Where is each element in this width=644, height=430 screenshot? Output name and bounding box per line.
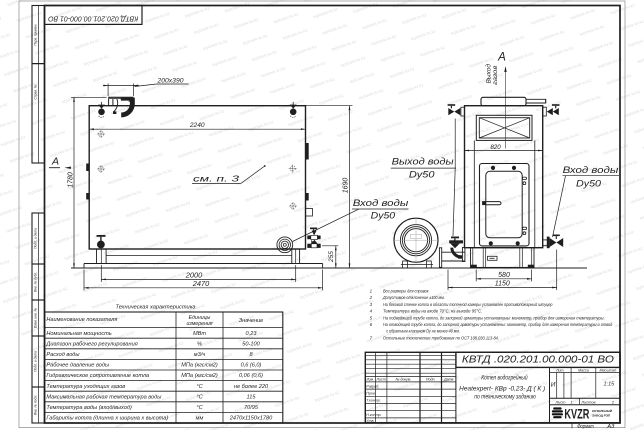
svg-text:1:15: 1:15: [604, 382, 616, 388]
svg-text:Т.контр.: Т.контр.: [366, 398, 381, 402]
svg-text:Выход: Выход: [487, 63, 493, 83]
svg-text:измерения: измерения: [187, 321, 213, 327]
svg-text:Перв. примен.: Перв. примен.: [33, 24, 37, 46]
svg-text:Температура воды на входе 70°: Температура воды на входе 70°С, на выход…: [383, 309, 482, 314]
svg-text:2470х1150х1780: 2470х1150х1780: [229, 416, 273, 422]
svg-text:КВТД .020.201.00.000-01 ВО: КВТД .020.201.00.000-01 ВО: [462, 354, 614, 365]
svg-text:1: 1: [570, 399, 572, 404]
svg-text:%: %: [197, 341, 202, 347]
svg-text:Котел водогрейный: Котел водогрейный: [481, 375, 528, 382]
svg-text:Подп.: Подп.: [426, 378, 436, 382]
svg-text:А: А: [497, 52, 506, 64]
svg-text:Допустимое отклонение ±100 мм.: Допустимое отклонение ±100 мм.: [382, 295, 445, 300]
svg-text:Dy50: Dy50: [576, 179, 601, 189]
svg-text:ЗАВОД РЭП: ЗАВОД РЭП: [592, 414, 611, 418]
svg-text:580: 580: [498, 272, 510, 279]
svg-text:На боковой стенке котла в обла: На боковой стенке котла в области топочн…: [383, 302, 553, 307]
svg-text:Лит.: Лит.: [555, 368, 564, 372]
svg-text:Лист: Лист: [375, 378, 385, 382]
svg-text:На подводящей трубе котла, до: На подводящей трубе котла, до запорной а…: [383, 315, 605, 320]
svg-text:Все размеры для справок: Все размеры для справок: [383, 288, 429, 293]
svg-text:0,06 (0,6): 0,06 (0,6): [239, 373, 263, 379]
svg-text:Подп. и дата: Подп. и дата: [33, 351, 37, 372]
svg-text:2: 2: [369, 295, 373, 300]
svg-text:Справ. №: Справ. №: [33, 84, 37, 99]
svg-text:Н.контр.: Н.контр.: [366, 413, 381, 417]
svg-text:Вход воды: Вход воды: [353, 198, 409, 208]
svg-text:°С: °С: [196, 405, 203, 411]
svg-text:КВТД.020.201.00.000-01 ВО: КВТД.020.201.00.000-01 ВО: [48, 14, 138, 23]
svg-text:1150: 1150: [495, 281, 510, 288]
svg-text:газов: газов: [493, 66, 499, 85]
svg-text:200х390: 200х390: [156, 78, 183, 85]
svg-text:Dy50: Dy50: [409, 170, 435, 180]
svg-text:Подп. и дата: Подп. и дата: [33, 228, 37, 249]
svg-text:№ докум.: № докум.: [395, 378, 411, 382]
svg-text:70/95: 70/95: [244, 405, 259, 411]
svg-text:Остальные технические требован: Остальные технические требования по ОСТ …: [383, 335, 499, 340]
svg-text:МВт: МВт: [193, 331, 206, 337]
svg-text:0,6 (6,0): 0,6 (6,0): [241, 363, 262, 369]
svg-text:А3: А3: [606, 424, 614, 430]
svg-text:Утв.: Утв.: [366, 419, 374, 423]
svg-text:по техническому заданию: по техническому заданию: [474, 394, 536, 400]
svg-text:Диапазон рабочего регулировани: Диапазон рабочего регулирования: [45, 341, 137, 347]
svg-text:Dy50: Dy50: [371, 211, 395, 221]
svg-text:Температура воды (вход/выход): Температура воды (вход/выход): [46, 405, 132, 411]
svg-text:820: 820: [490, 144, 501, 151]
svg-text:1690: 1690: [343, 178, 350, 194]
svg-text:Значение: Значение: [239, 318, 264, 324]
svg-text:255: 255: [328, 251, 335, 263]
svg-text:м3/ч: м3/ч: [194, 352, 205, 358]
svg-text:°С: °С: [196, 384, 203, 390]
svg-text:МПа (кгс/см2): МПа (кгс/см2): [181, 373, 218, 379]
svg-text:На отводящей трубе котла, до з: На отводящей трубе котла, до запорной ар…: [383, 322, 613, 327]
svg-text:Температура уходящих газов: Температура уходящих газов: [46, 384, 125, 390]
svg-text:И: И: [551, 382, 556, 389]
svg-text:0,23: 0,23: [246, 331, 258, 337]
svg-text:Техническая характеристика: Техническая характеристика: [116, 305, 197, 311]
svg-text:Масса: Масса: [578, 368, 589, 372]
svg-text:Рабочее давление воды: Рабочее давление воды: [46, 363, 109, 369]
svg-text:50-100: 50-100: [242, 341, 260, 347]
svg-text:Дата: Дата: [443, 378, 453, 382]
svg-text:Масштаб: Масштаб: [600, 368, 618, 372]
svg-text:°С: °С: [196, 394, 203, 400]
svg-text:Гидравлическое сопротивление к: Гидравлическое сопротивление котла: [46, 373, 149, 379]
svg-text:1780: 1780: [67, 172, 74, 188]
svg-text:2240: 2240: [189, 122, 205, 129]
svg-text:КОТЕЛЬНЫЙ: КОТЕЛЬНЫЙ: [592, 409, 613, 413]
svg-text:115: 115: [247, 394, 257, 400]
svg-text:2470: 2470: [192, 279, 210, 288]
svg-text:Выход воды: Выход воды: [392, 157, 454, 167]
svg-text:Heatexpert- КВр -0,23- Д ( К ): Heatexpert- КВр -0,23- Д ( К ): [459, 386, 545, 392]
svg-text:Расход воды: Расход воды: [46, 352, 79, 358]
svg-text:Максимальная рабочая температу: Максимальная рабочая температура воды: [46, 394, 161, 400]
svg-text:Инв. № дубл.: Инв. № дубл.: [33, 272, 37, 292]
svg-text:Габариты котла (длинна х ширин: Габариты котла (длинна х ширина х высота…: [46, 416, 168, 422]
svg-text:Наименование показателя: Наименование показателя: [46, 317, 117, 323]
svg-text:А: А: [51, 156, 59, 168]
svg-text:Листов: Листов: [580, 399, 595, 404]
svg-text:Вход воды: Вход воды: [563, 165, 619, 175]
svg-text:с обратным клапаном Dу не мен: с обратным клапаном Dу не менее 40 мм.: [386, 329, 460, 334]
svg-text:Изм.: Изм.: [366, 378, 374, 382]
svg-text:не более 220: не более 220: [234, 384, 269, 390]
svg-text:KVZR: KVZR: [564, 406, 589, 422]
svg-text:Взам. инв. №: Взам. инв. №: [33, 307, 37, 328]
svg-text:мм: мм: [196, 416, 204, 422]
svg-text:Пров.: Пров.: [366, 392, 375, 396]
svg-text:см. п. 3: см. п. 3: [193, 173, 239, 183]
svg-text:Инв. № подл.: Инв. № подл.: [33, 395, 37, 416]
svg-text:Формат: Формат: [577, 424, 594, 430]
svg-text:Номинальная мощность: Номинальная мощность: [46, 331, 111, 337]
svg-text:Лист: Лист: [554, 399, 566, 404]
svg-text:МПа (кгс/см2): МПа (кгс/см2): [181, 363, 218, 369]
svg-text:Разраб.: Разраб.: [366, 385, 379, 389]
